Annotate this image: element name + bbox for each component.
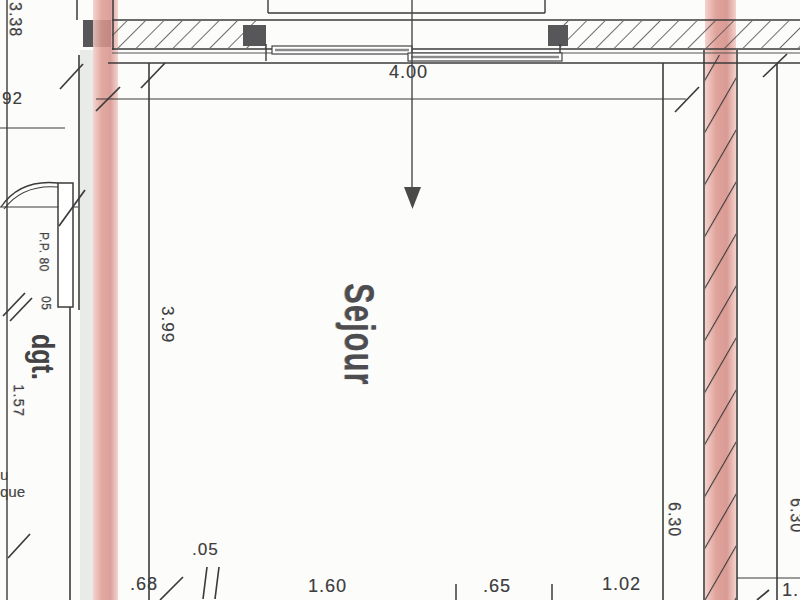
corridor-shading [80, 50, 93, 600]
sliding-panel [408, 53, 562, 61]
floor-plan: 3.38 92 P.P. 80 05 dgt. 1.57 uque 4.00 3… [0, 0, 800, 600]
sliding-panel [272, 46, 412, 54]
dim-corridor-inner: 1.57 [11, 384, 27, 417]
corridor-label: dgt. [27, 334, 60, 380]
down-arrow-icon [404, 187, 421, 209]
dim-bottom-68: .68 [130, 575, 158, 594]
axis-arrow [404, 0, 421, 209]
clipped-label-top: u [0, 466, 8, 483]
window-end-block [243, 25, 266, 46]
dim-corridor-width: 92 [2, 90, 23, 108]
window-end-block [548, 25, 568, 46]
dim-right-outer: 6.30 [787, 498, 800, 533]
balcony-outline [268, 0, 545, 13]
dim-corridor-length: 3.38 [6, 2, 23, 37]
dim-bottom-05: .05 [192, 541, 219, 559]
dim-bottom-160: 1.60 [308, 577, 347, 596]
top-wall [77, 0, 800, 50]
room-walls [108, 63, 800, 600]
dim-window-width: 4.00 [389, 63, 428, 82]
room-label: Sejour [336, 283, 380, 385]
dim-bottom-102: 1.02 [602, 575, 641, 594]
clipped-label-bottom: que [0, 483, 25, 500]
clipped-label: uque [0, 466, 25, 500]
dim-right-inner: 6.30 [665, 502, 682, 537]
dim-bottom-65: .65 [483, 577, 511, 596]
door-leaf [58, 183, 73, 307]
right-pink-wall [704, 0, 737, 600]
dim-door-jamb: 05 [39, 296, 52, 310]
door-type-label: P.P. 80 [37, 232, 50, 272]
left-pink-wall [93, 0, 118, 600]
dim-room-left: 3.99 [158, 306, 176, 343]
dim-bottom-clipped: 1. [782, 581, 799, 600]
door-swing-arc [4, 187, 58, 209]
